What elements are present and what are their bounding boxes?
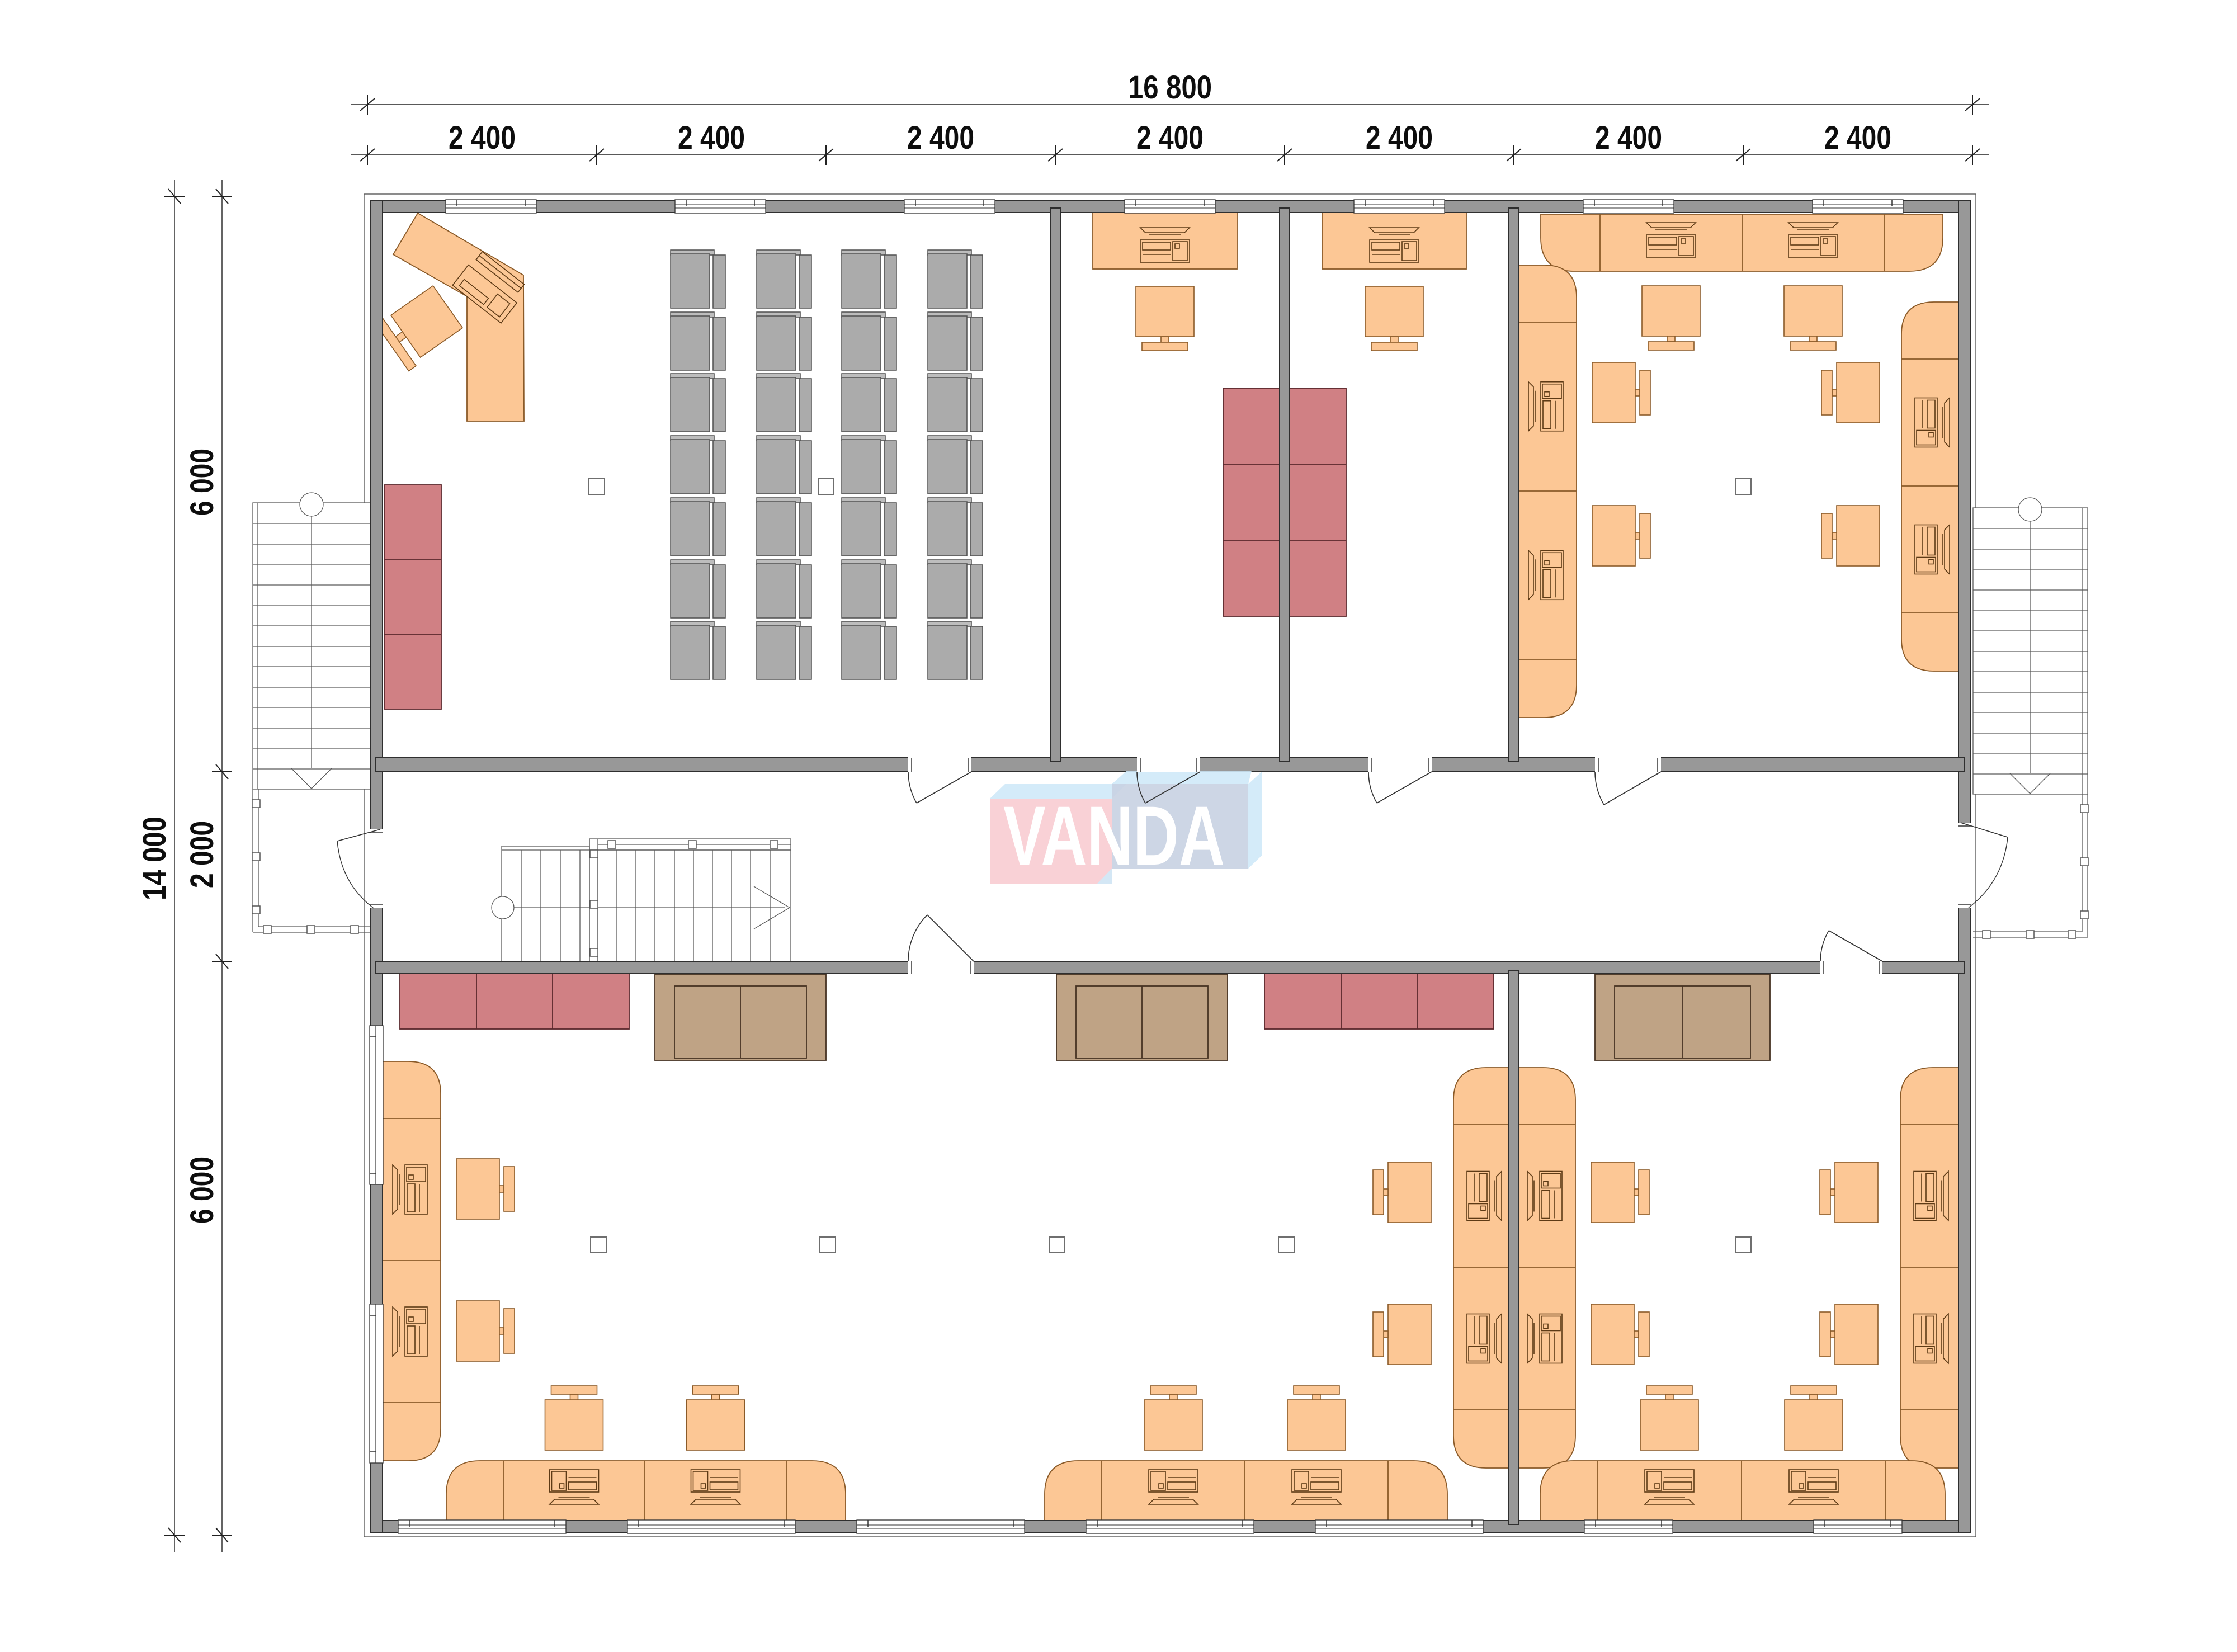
svg-text:2 400: 2 400 [907, 120, 974, 156]
svg-text:6 000: 6 000 [184, 449, 220, 516]
svg-text:2 400: 2 400 [1595, 120, 1662, 156]
svg-text:2 400: 2 400 [1366, 120, 1433, 156]
svg-text:16 800: 16 800 [1128, 69, 1212, 106]
svg-text:2 400: 2 400 [1136, 120, 1204, 156]
svg-text:VANDA: VANDA [1003, 789, 1225, 882]
svg-text:2 400: 2 400 [1824, 120, 1891, 156]
svg-text:2 400: 2 400 [449, 120, 516, 156]
svg-text:2 400: 2 400 [678, 120, 745, 156]
svg-text:2 000: 2 000 [184, 821, 220, 888]
svg-text:14 000: 14 000 [136, 816, 173, 900]
svg-text:6 000: 6 000 [184, 1157, 220, 1224]
